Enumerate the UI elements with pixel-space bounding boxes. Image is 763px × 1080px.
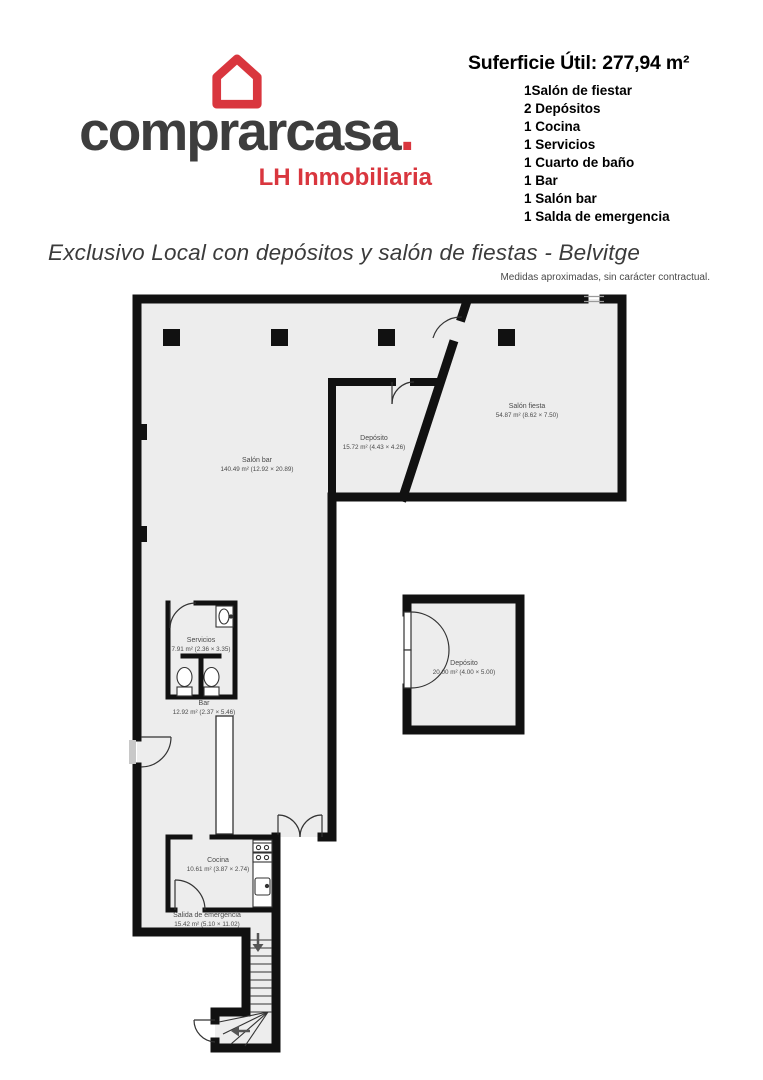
bar-counter xyxy=(216,716,233,834)
sink-icon xyxy=(216,606,233,627)
room-label-deposito-2: Depósito xyxy=(450,660,478,667)
room-label-salon-fiesta: Salón fiesta xyxy=(509,403,546,410)
room-label-bar: Bar xyxy=(199,700,211,707)
room-dims-salon-fiesta: 54.87 m² (8.62 × 7.50) xyxy=(496,412,558,419)
room-label-deposito-1: Depósito xyxy=(360,435,388,442)
room-label-cocina: Cocina xyxy=(207,857,229,864)
room-label-salon-bar: Salón bar xyxy=(242,457,273,464)
room-dims-salida: 15.42 m² (5.10 × 11.02) xyxy=(174,921,240,928)
room-label-servicios: Servicios xyxy=(187,637,216,644)
kitchen-appliances xyxy=(253,840,272,907)
room-dims-cocina: 10.61 m² (3.87 × 2.74) xyxy=(187,866,249,873)
room-dims-servicios: 7.91 m² (2.36 × 3.35) xyxy=(172,646,231,653)
room-dims-salon-bar: 140.49 m² (12.92 × 20.89) xyxy=(221,466,294,473)
floor-plan: Salón bar 140.49 m² (12.92 × 20.89) Depó… xyxy=(0,0,763,1080)
room-dims-deposito-2: 20.00 m² (4.00 × 5.00) xyxy=(433,669,495,676)
room-label-salida: Salida de emergencia xyxy=(173,912,241,919)
room-dims-bar: 12.92 m² (2.37 × 5.46) xyxy=(173,709,235,716)
room-dims-deposito-1: 15.72 m² (4.43 × 4.26) xyxy=(343,444,405,451)
